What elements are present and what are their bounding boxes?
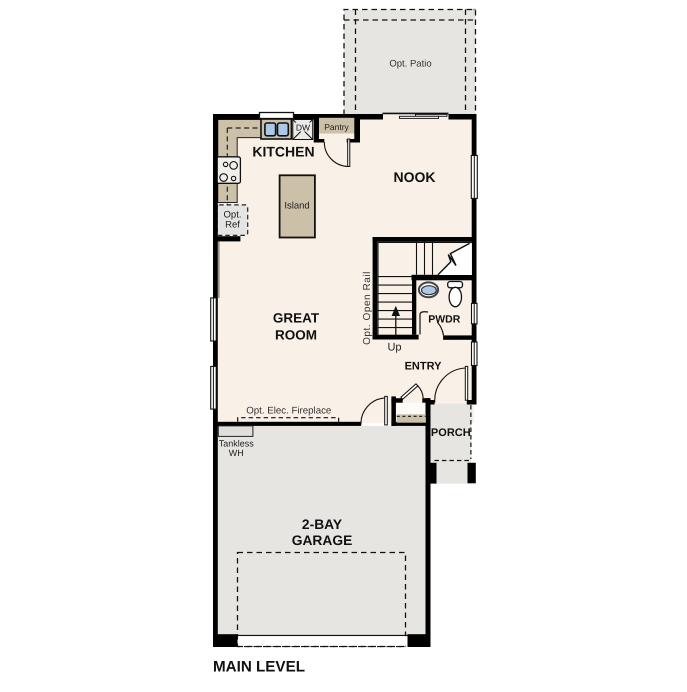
svg-text:Tankless: Tankless <box>219 439 255 449</box>
svg-text:2-BAY: 2-BAY <box>302 517 342 532</box>
svg-text:DW: DW <box>296 123 310 133</box>
svg-text:GARAGE: GARAGE <box>292 533 353 548</box>
svg-text:NOOK: NOOK <box>394 169 436 185</box>
svg-text:WH: WH <box>229 448 244 458</box>
svg-text:PORCH: PORCH <box>431 427 471 439</box>
svg-text:Ref: Ref <box>225 220 240 231</box>
svg-text:Opt. Open Rail: Opt. Open Rail <box>362 271 373 345</box>
svg-text:ENTRY: ENTRY <box>405 361 443 373</box>
svg-text:Pantry: Pantry <box>324 122 349 132</box>
svg-text:PWDR: PWDR <box>428 314 460 326</box>
svg-text:Opt. Elec. Fireplace: Opt. Elec. Fireplace <box>246 406 331 417</box>
svg-text:ROOM: ROOM <box>275 328 317 343</box>
svg-text:MAIN LEVEL: MAIN LEVEL <box>213 659 305 676</box>
svg-text:Up: Up <box>387 342 401 354</box>
svg-text:Opt. Patio: Opt. Patio <box>389 59 431 70</box>
svg-text:Island: Island <box>284 201 309 212</box>
svg-text:KITCHEN: KITCHEN <box>252 144 314 160</box>
svg-text:GREAT: GREAT <box>273 311 320 326</box>
